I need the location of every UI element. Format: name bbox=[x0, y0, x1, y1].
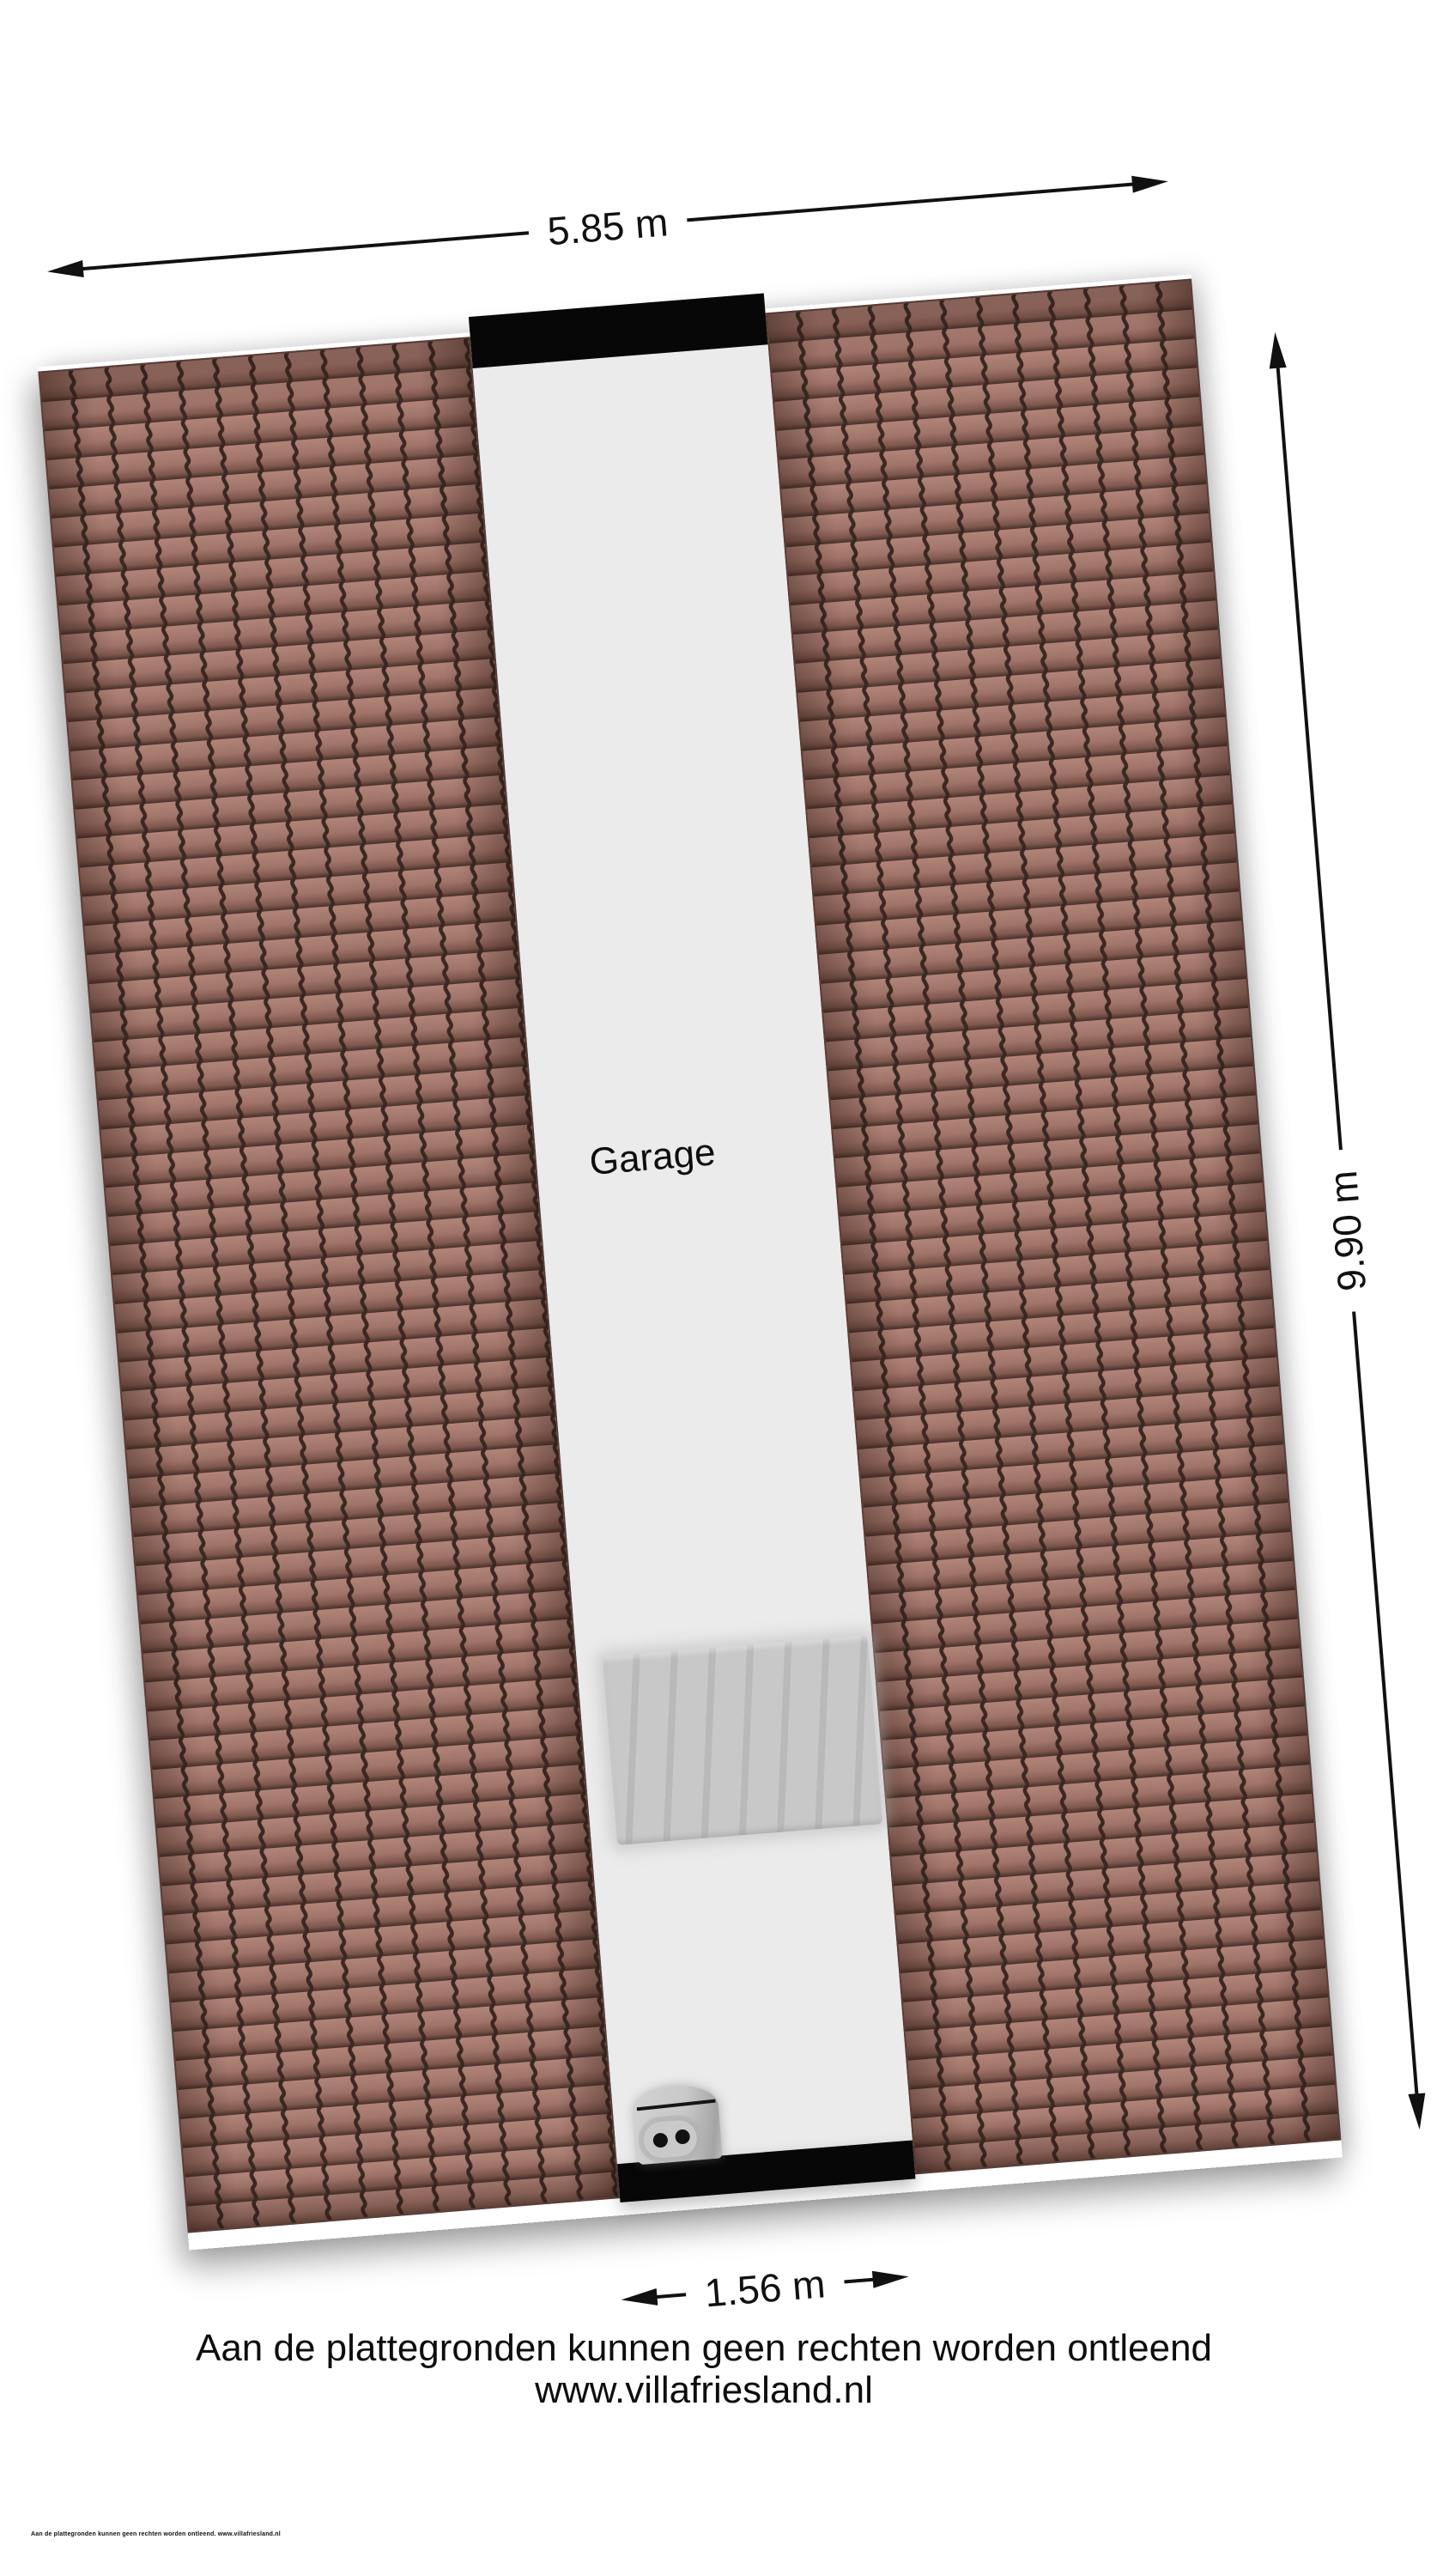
arrowhead-right-icon bbox=[1131, 173, 1168, 192]
staircase bbox=[603, 1636, 883, 1845]
arrowhead-down-icon bbox=[1408, 2093, 1428, 2129]
dimension-corridor: 1.56 m bbox=[620, 2254, 911, 2322]
dimension-corridor-label: 1.56 m bbox=[684, 2259, 846, 2318]
arrowhead-left-icon bbox=[46, 260, 83, 280]
footer-disclaimer: Aan de plattegronden kunnen geen rechten… bbox=[0, 2327, 1408, 2411]
boiler-pipe-dot bbox=[675, 2129, 690, 2144]
boiler-connector-plate bbox=[642, 2119, 698, 2160]
boiler-lid-line bbox=[637, 2099, 716, 2111]
arrowhead-up-icon bbox=[1266, 331, 1286, 368]
disclaimer-line2: www.villafriesland.nl bbox=[0, 2369, 1408, 2411]
arrowhead-right-icon bbox=[872, 2268, 909, 2287]
floorplan: Garage 5.85 m 9.90 m bbox=[38, 274, 1343, 2250]
dimension-width-label: 5.85 m bbox=[527, 197, 688, 257]
disclaimer-line1: Aan de plattegronden kunnen geen rechten… bbox=[0, 2327, 1408, 2369]
fineprint-disclaimer: Aan de plattegronden kunnen geen rechten… bbox=[31, 2531, 281, 2537]
boiler-unit bbox=[633, 2083, 723, 2166]
boiler-pipe-dot bbox=[652, 2132, 668, 2148]
floorplan-page: Garage 5.85 m 9.90 m bbox=[0, 0, 1449, 2576]
dimension-width: 5.85 m bbox=[45, 159, 1170, 294]
dimension-height-label: 9.90 m bbox=[1318, 1148, 1377, 1313]
arrowhead-left-icon bbox=[621, 2288, 658, 2308]
